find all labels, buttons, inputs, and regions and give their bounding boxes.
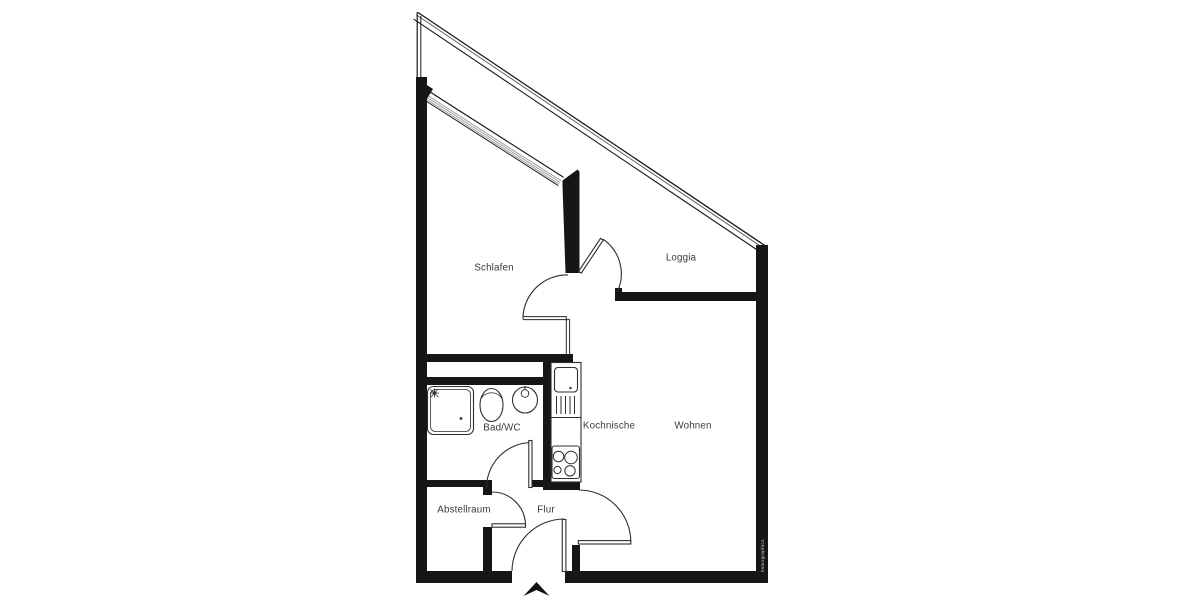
north-arrow-icon: [524, 582, 550, 596]
abstell-door-leaf: [492, 524, 526, 527]
room-label-abstellraum: Abstellraum: [437, 505, 490, 516]
room-label-wohnen: Wohnen: [674, 421, 711, 432]
wall-bad-south-left: [426, 480, 483, 487]
burner: [565, 451, 578, 464]
wall-kitchen-west: [543, 362, 551, 482]
window-edge-inner: [422, 98, 558, 185]
window-glass-line: [424, 95, 560, 182]
floorplan-canvas: immographics Schlafen Loggia Bad/WC Koch…: [0, 0, 1200, 600]
schlafen-door-recess: [523, 317, 570, 355]
wall-schlafen-loggia-divider: [563, 170, 580, 274]
window-glass-line: [423, 97, 559, 184]
bad-door-leaf: [529, 441, 532, 488]
room-label-flur: Flur: [537, 505, 554, 516]
walls: [416, 12, 768, 583]
wall-bad-south-right: [530, 480, 551, 487]
window-glass-line: [425, 94, 561, 181]
schlafen-door-arc: [523, 275, 568, 317]
parapet-line-inner: [414, 19, 762, 253]
burner: [554, 466, 561, 473]
room-label-bad-wc: Bad/WC: [483, 423, 520, 434]
kitchen-unit: [551, 363, 581, 483]
shower-head-icon: [430, 389, 439, 398]
wall-bottom-left: [416, 571, 512, 583]
burner: [565, 466, 575, 476]
parapet-line-mid: [416, 15, 764, 249]
shower-tray-inner: [431, 390, 471, 432]
loggia-parapet: [413, 12, 766, 254]
burner: [553, 451, 564, 462]
shower-head-dot: [433, 392, 436, 395]
wall-bottom-right: [565, 571, 768, 583]
loggia-door-arc: [603, 239, 622, 292]
room-label-kochnische: Kochnische: [583, 421, 635, 432]
entry-door-leaf: [562, 520, 566, 572]
room-label-loggia: Loggia: [666, 253, 696, 264]
wall-bad-north: [426, 377, 545, 385]
room-label-schlafen: Schlafen: [474, 263, 513, 274]
wall-flur-wohnen-stub: [572, 545, 580, 571]
bad-door-arc: [487, 443, 531, 488]
wall-abstell-partition: [483, 527, 492, 571]
kitchen-sink-drain: [569, 387, 571, 389]
wohnen-door-arc: [579, 490, 631, 542]
kitchen-sink: [555, 368, 578, 393]
abstell-door-arc: [492, 492, 526, 526]
watermark: immographics: [760, 539, 765, 572]
recess-line-inner: [523, 320, 570, 355]
loggia-door-leaf: [579, 238, 604, 273]
wall-schlafen-south: [416, 354, 573, 362]
wall-loggia-south: [617, 292, 768, 301]
faucet-knob: [521, 390, 529, 398]
floorplan-drawing: immographics: [0, 0, 1200, 600]
wohnen-door-leaf: [578, 541, 631, 544]
shower-drain: [460, 417, 463, 420]
wall-left: [416, 77, 427, 583]
toilet: [480, 389, 503, 422]
recess-line-outer: [523, 317, 566, 355]
wall-bad-door-jamb: [483, 480, 492, 495]
